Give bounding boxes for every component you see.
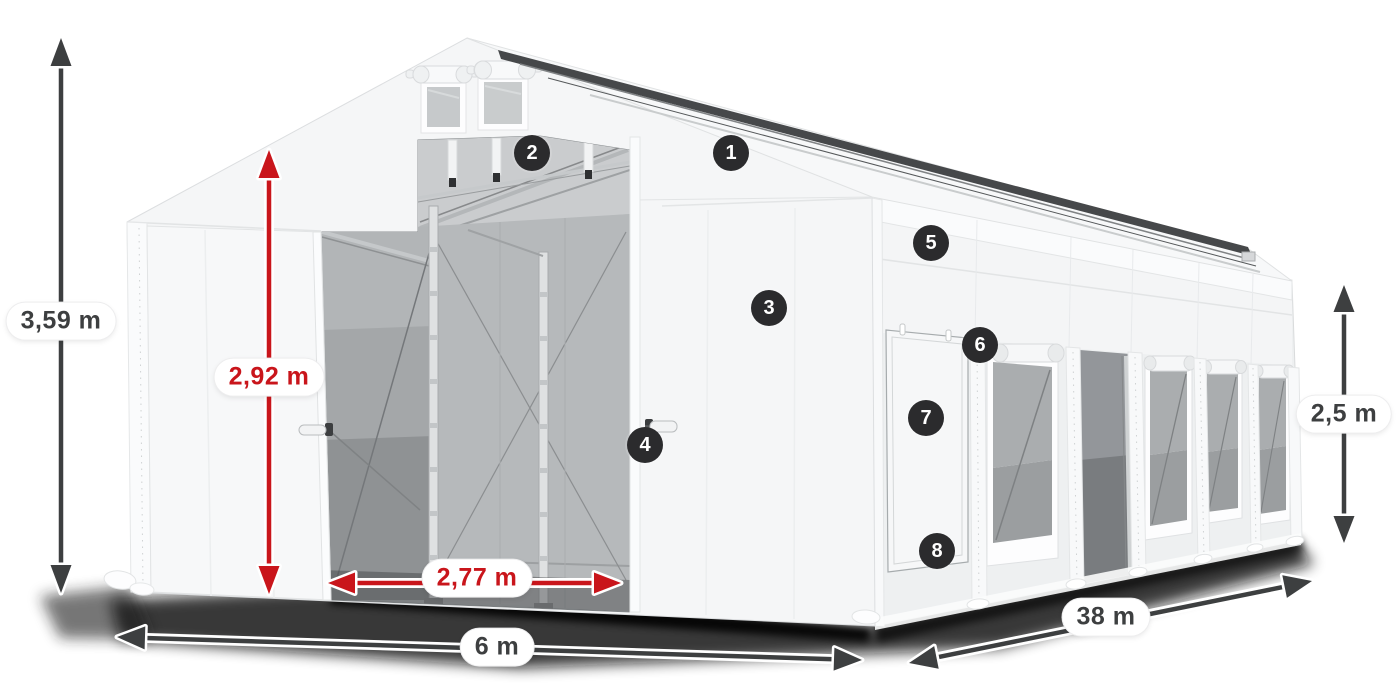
gate-handle-left: [299, 425, 326, 435]
ridge-end-cap: [1242, 252, 1255, 261]
callout-badge-4: 4: [627, 427, 663, 463]
callout-badge-1: 1: [713, 135, 749, 171]
dimension-label-side-length: 38 m: [1063, 599, 1150, 636]
dimension-label-front-width: 6 m: [461, 629, 534, 666]
door-hook-tab: [900, 324, 905, 335]
side-window-1: [987, 344, 1064, 566]
callout-badge-6: 6: [962, 327, 998, 363]
tent-dimension-diagram: 3,59 m 2,92 m 2,77 m 6 m 38 m 2,5 m 1 2 …: [0, 0, 1400, 700]
dimension-label-gate-width: 2,77 m: [423, 560, 532, 597]
callout-badge-3: 3: [751, 290, 787, 326]
dimension-label-side-height: 2,5 m: [1297, 396, 1391, 433]
callout-badge-2: 2: [514, 135, 550, 171]
tent-illustration: [0, 0, 1400, 700]
callout-badge-8: 8: [919, 533, 955, 569]
side-open-gap: [1080, 350, 1134, 584]
callout-badge-7: 7: [908, 400, 944, 436]
door-hook-tab: [946, 330, 951, 341]
dimension-label-gate-height: 2,92 m: [215, 359, 324, 396]
side-window-2: [1144, 356, 1196, 540]
dimension-label-total-height: 3,59 m: [7, 303, 116, 340]
callout-badge-5: 5: [913, 225, 949, 261]
